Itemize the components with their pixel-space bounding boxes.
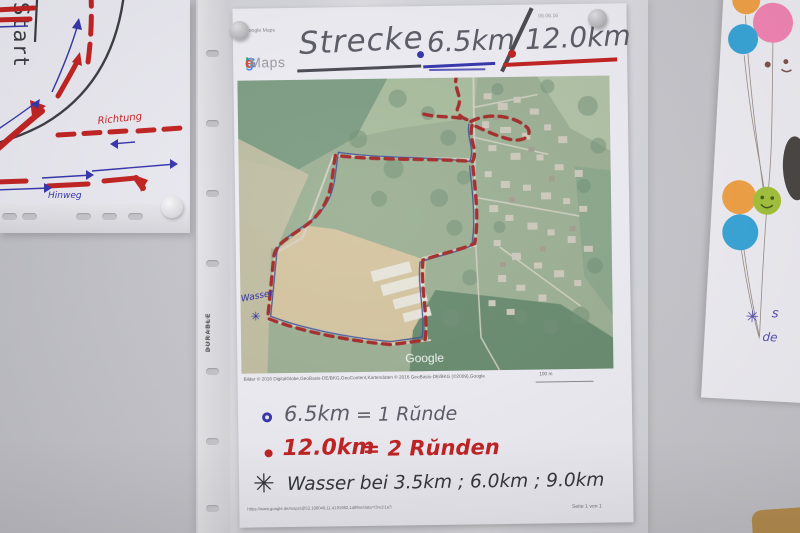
balloon-pink bbox=[752, 2, 794, 44]
blue-dot-icon bbox=[417, 51, 424, 58]
blue-arrowhead-icons bbox=[31, 18, 178, 193]
maps-wordmark: Maps bbox=[249, 54, 285, 71]
punch-hole bbox=[206, 368, 219, 375]
map-attribution: Bilder © 2016 DigitalGlobe,GeoBasis-DE/B… bbox=[244, 374, 485, 382]
title-distance-long: 12.0km bbox=[524, 19, 631, 56]
strecke-underline bbox=[297, 65, 421, 73]
google-watermark: Google bbox=[405, 351, 444, 366]
start-label: Start bbox=[9, 2, 33, 68]
punch-hole bbox=[206, 190, 219, 197]
photo-board-scene: Start bbox=[0, 0, 800, 533]
balloon-blue-bottom bbox=[721, 213, 759, 251]
date-note: 06.06.16 bbox=[538, 14, 558, 19]
durable-brand: DURABLE bbox=[206, 312, 213, 352]
grey-pin-icon bbox=[588, 9, 607, 28]
title-strecke: Strecke bbox=[298, 20, 424, 62]
map-scale-label: 100 m bbox=[539, 372, 552, 377]
punch-hole bbox=[128, 213, 143, 220]
map-scale-bar bbox=[536, 381, 594, 383]
map-printout-page: Google Maps 06.06.16 GoogleMaps Strecke … bbox=[232, 3, 633, 527]
punch-hole bbox=[102, 213, 117, 220]
balloon-strings bbox=[727, 15, 778, 338]
richtung-label: Richtung bbox=[97, 111, 142, 127]
right-partial-text-a: s bbox=[771, 306, 779, 321]
note-rounds-long: = 2 Rŭnden bbox=[362, 435, 499, 461]
hinweg-label: Hinweg bbox=[48, 191, 82, 201]
punch-hole bbox=[206, 260, 219, 267]
track-sketch-drawing: Start bbox=[0, 0, 190, 204]
short-distance-underline-2 bbox=[429, 68, 485, 71]
dark-paint-blob bbox=[781, 136, 800, 201]
white-pin-icon bbox=[161, 196, 183, 218]
title-distance-short: 6.5km bbox=[426, 23, 515, 59]
sleeve-punch-edge: DURABLE MADE IN GERMANY bbox=[198, 0, 230, 533]
right-asterisk-icon: ✳ bbox=[745, 309, 759, 327]
painted-dots bbox=[764, 58, 792, 72]
track-sketch-paper: Start bbox=[0, 0, 190, 233]
punch-hole bbox=[76, 213, 91, 220]
ring-bullet-icon bbox=[262, 412, 272, 422]
punch-hole bbox=[22, 213, 37, 220]
balloon-drawing: ✳ s de bbox=[701, 0, 800, 403]
right-partial-text-b: de bbox=[762, 330, 778, 345]
water-asterisk-icon: ✳ bbox=[253, 468, 275, 499]
dot-bullet-icon bbox=[265, 449, 273, 457]
long-distance-underline bbox=[503, 57, 617, 67]
footer-url: https://www.google.de/maps/@52.198046,11… bbox=[247, 506, 391, 512]
punch-hole bbox=[206, 505, 219, 512]
punch-hole bbox=[206, 438, 219, 445]
balloon-green bbox=[752, 186, 782, 216]
footer-page-label: Seite 1 von 1 bbox=[572, 504, 602, 510]
punch-hole bbox=[206, 50, 219, 57]
made-in-label: MADE IN GERMANY bbox=[207, 314, 211, 352]
google-maps-small-label: Google Maps bbox=[245, 28, 275, 34]
note-distance-short: 6.5km bbox=[284, 401, 350, 426]
route-map: Google Wasser ✳ bbox=[237, 76, 613, 374]
balloon-art-paper: ✳ s de bbox=[701, 0, 800, 403]
tan-corner-object bbox=[751, 507, 800, 533]
note-water-stations: Wasser bei 3.5km ; 6.0km ; 9.0km bbox=[287, 470, 605, 495]
punch-hole bbox=[2, 213, 17, 220]
red-dot-icon bbox=[508, 50, 516, 58]
balloon-orange-bottom bbox=[721, 179, 757, 215]
punch-hole bbox=[206, 120, 219, 127]
wasser-asterisk-icon: ✳ bbox=[251, 309, 261, 323]
note-rounds-short: = 1 Rŭnde bbox=[356, 403, 457, 426]
note-distance-long: 12.0km bbox=[282, 435, 374, 461]
grey-pin-icon bbox=[230, 21, 249, 40]
